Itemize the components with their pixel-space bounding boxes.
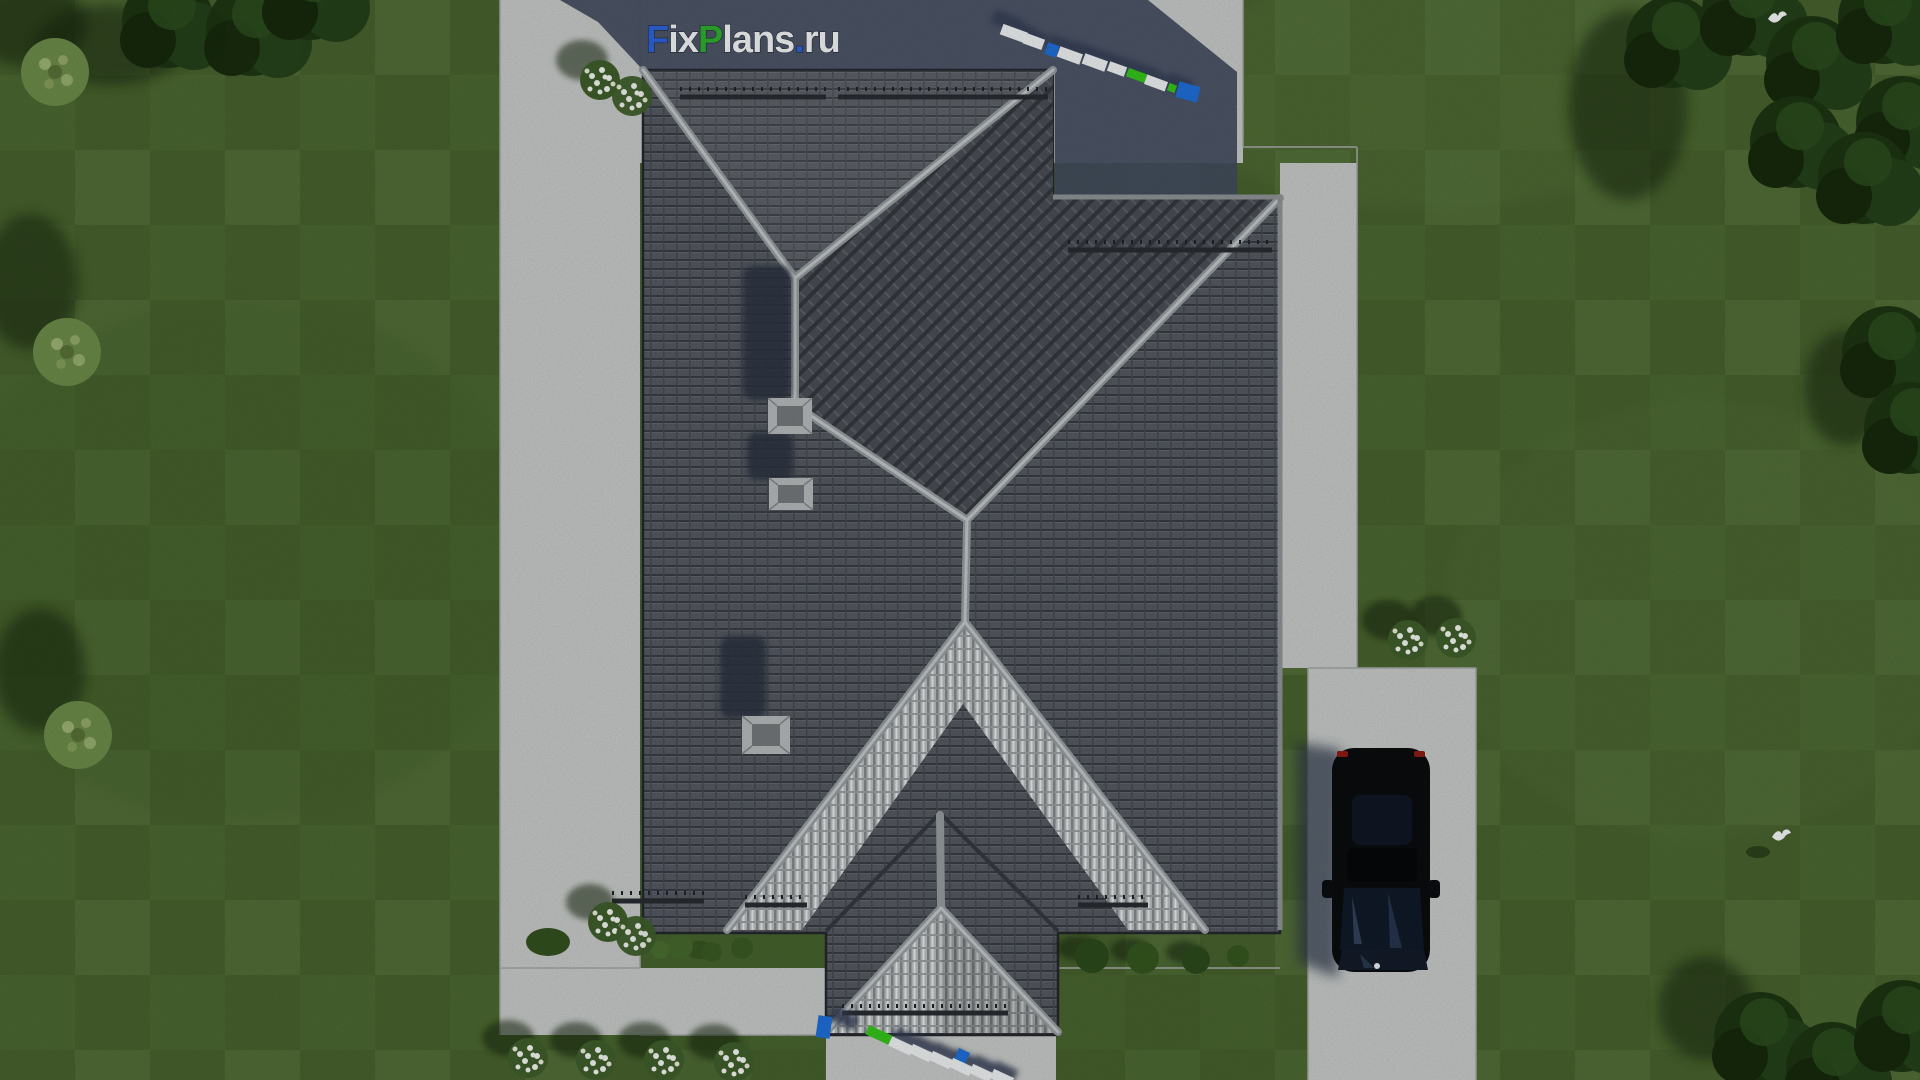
scene-canvas: FixPlans.ru <box>0 0 1920 1080</box>
aerial-render: FixPlans.ru <box>0 0 1920 1080</box>
texture-grain <box>0 0 1920 1080</box>
